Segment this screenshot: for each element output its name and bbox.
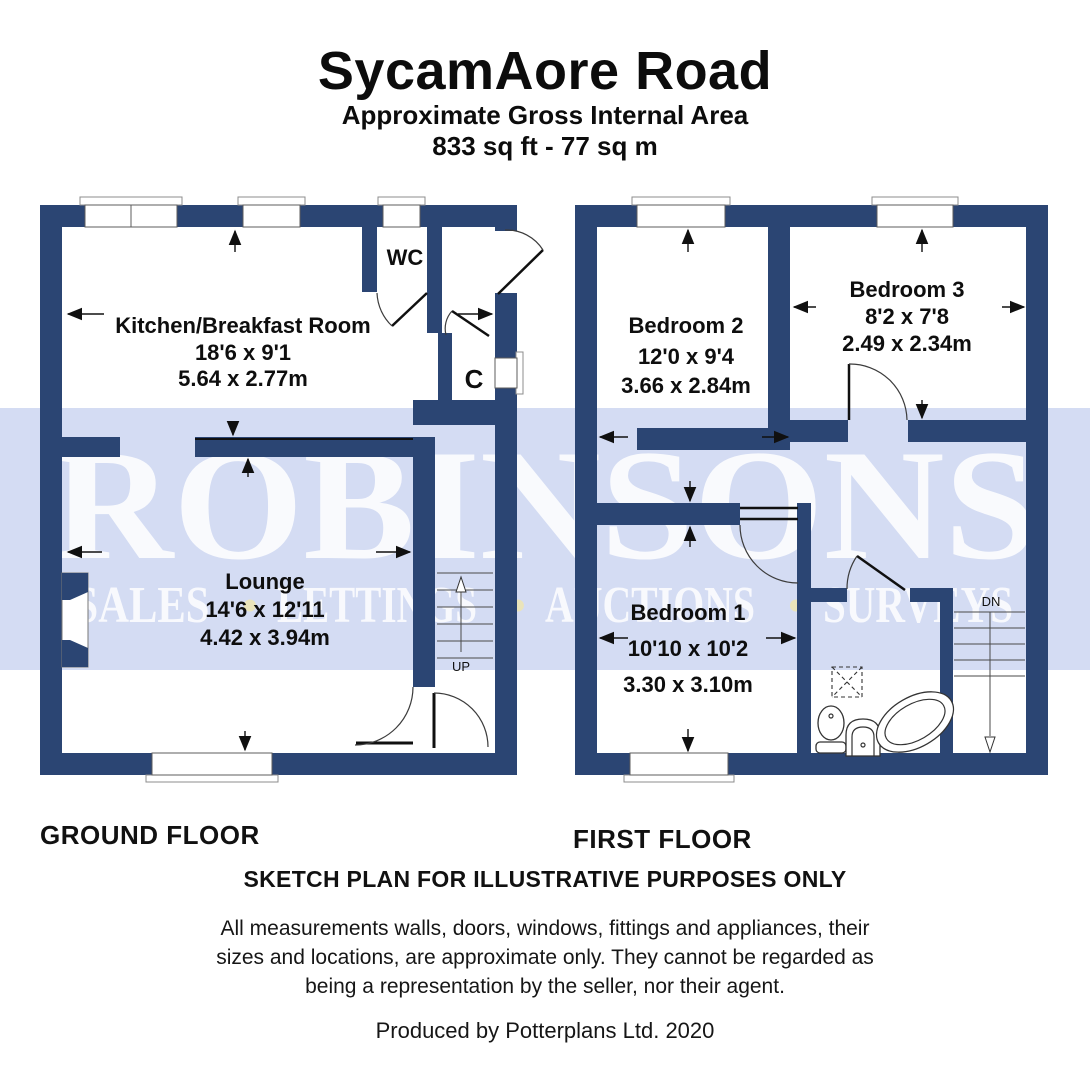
- room-name: Bedroom 3: [850, 277, 965, 302]
- disclaimer-line: sizes and locations, are approximate onl…: [0, 943, 1090, 972]
- ff-wall-bed2-bottom: [637, 428, 790, 450]
- ff-wall-right: [1026, 205, 1048, 775]
- ff-wall-bed2-bed3: [768, 227, 790, 442]
- gf-wall-cupboard: [438, 333, 452, 403]
- room-dims-imperial: 8'2 x 7'8: [865, 304, 949, 329]
- ground-floor-caption: GROUND FLOOR: [40, 820, 260, 851]
- watermark-word-sales: SALES: [75, 577, 210, 634]
- room-label-bedroom3: Bedroom 3 8'2 x 7'8 2.49 x 2.34m: [842, 277, 972, 356]
- gf-wall-stair-side: [413, 437, 435, 687]
- ff-wall-bathroom-stairs: [940, 588, 953, 775]
- gf-window-kitchen-1: [80, 197, 182, 227]
- room-label-bedroom2: Bedroom 2 12'0 x 9'4 3.66 x 2.84m: [621, 313, 751, 398]
- gf-wall-wc-right: [427, 227, 442, 333]
- room-name: Kitchen/Breakfast Room: [115, 313, 371, 338]
- stairs-down-label: DN: [982, 594, 1001, 609]
- disclaimer-text: All measurements walls, doors, windows, …: [0, 914, 1090, 1001]
- ff-wall-bed3-bottom: [908, 420, 1026, 442]
- gf-wc-door: [377, 293, 427, 326]
- shower-icon: [832, 667, 862, 697]
- gf-window-lounge-bottom: [146, 753, 278, 782]
- watermark: ROBINSONS SALES • LETTINGS • AUCTIONS • …: [0, 408, 1090, 670]
- room-dims-metric: 4.42 x 3.94m: [200, 625, 330, 650]
- room-dims-metric: 3.66 x 2.84m: [621, 373, 751, 398]
- gf-wall-right: [495, 388, 517, 775]
- room-dims-imperial: 18'6 x 9'1: [195, 340, 291, 365]
- gf-wall-bottom: [40, 753, 517, 775]
- floorplan-page: SycamAore Road Approximate Gross Interna…: [0, 0, 1090, 1080]
- gf-window-wc: [378, 197, 425, 227]
- gf-wall-right: [495, 293, 517, 358]
- room-dims-imperial: 12'0 x 9'4: [638, 344, 735, 369]
- gf-wall-hall: [413, 400, 495, 425]
- ff-window-bed2: [632, 197, 730, 227]
- sketch-note: SKETCH PLAN FOR ILLUSTRATIVE PURPOSES ON…: [0, 866, 1090, 893]
- disclaimer-line: being a representation by the seller, no…: [0, 972, 1090, 1001]
- room-label-cupboard: C: [465, 364, 484, 394]
- room-dims-imperial: 10'10 x 10'2: [628, 636, 749, 661]
- stairs-up-label: UP: [452, 659, 470, 674]
- room-name: Bedroom 1: [631, 600, 746, 625]
- ff-window-bed1-bottom: [624, 753, 734, 782]
- toilet-icon: [816, 706, 846, 753]
- first-floor-caption: FIRST FLOOR: [573, 824, 752, 855]
- ff-window-bed3: [872, 197, 958, 227]
- gf-wall-right: [495, 205, 517, 231]
- room-dims-metric: 2.49 x 2.34m: [842, 331, 972, 356]
- ff-wall-bed1-right: [797, 503, 811, 775]
- gf-front-door: [498, 230, 543, 294]
- room-name: Bedroom 2: [629, 313, 744, 338]
- gf-cupboard-door: [445, 311, 489, 336]
- disclaimer-line: All measurements walls, doors, windows, …: [0, 914, 1090, 943]
- ff-wall-bathroom-top: [811, 588, 847, 602]
- gf-window-kitchen-2: [238, 197, 305, 227]
- room-label-wc: WC: [387, 245, 424, 270]
- sink-icon: [846, 719, 880, 756]
- gf-window-side: [495, 352, 523, 394]
- ff-wall-bed3-bottom: [790, 420, 848, 442]
- gf-wall-wc-left: [362, 227, 377, 292]
- gf-wall-divider-stub: [62, 437, 120, 457]
- room-name: Lounge: [225, 569, 304, 594]
- room-dims-imperial: 14'6 x 12'11: [205, 597, 324, 622]
- gf-lounge-door: [355, 687, 488, 748]
- room-label-bedroom1: Bedroom 1 10'10 x 10'2 3.30 x 3.10m: [623, 600, 753, 697]
- room-label-kitchen: Kitchen/Breakfast Room 18'6 x 9'1 5.64 x…: [115, 313, 371, 391]
- producer-credit: Produced by Potterplans Ltd. 2020: [0, 1018, 1090, 1044]
- gf-wall-left: [40, 205, 62, 775]
- room-dims-metric: 3.30 x 3.10m: [623, 672, 753, 697]
- room-dims-metric: 5.64 x 2.77m: [178, 366, 308, 391]
- ff-wall-bed1-top: [593, 503, 740, 525]
- ff-wall-left: [575, 205, 597, 775]
- gf-fireplace: [62, 573, 88, 667]
